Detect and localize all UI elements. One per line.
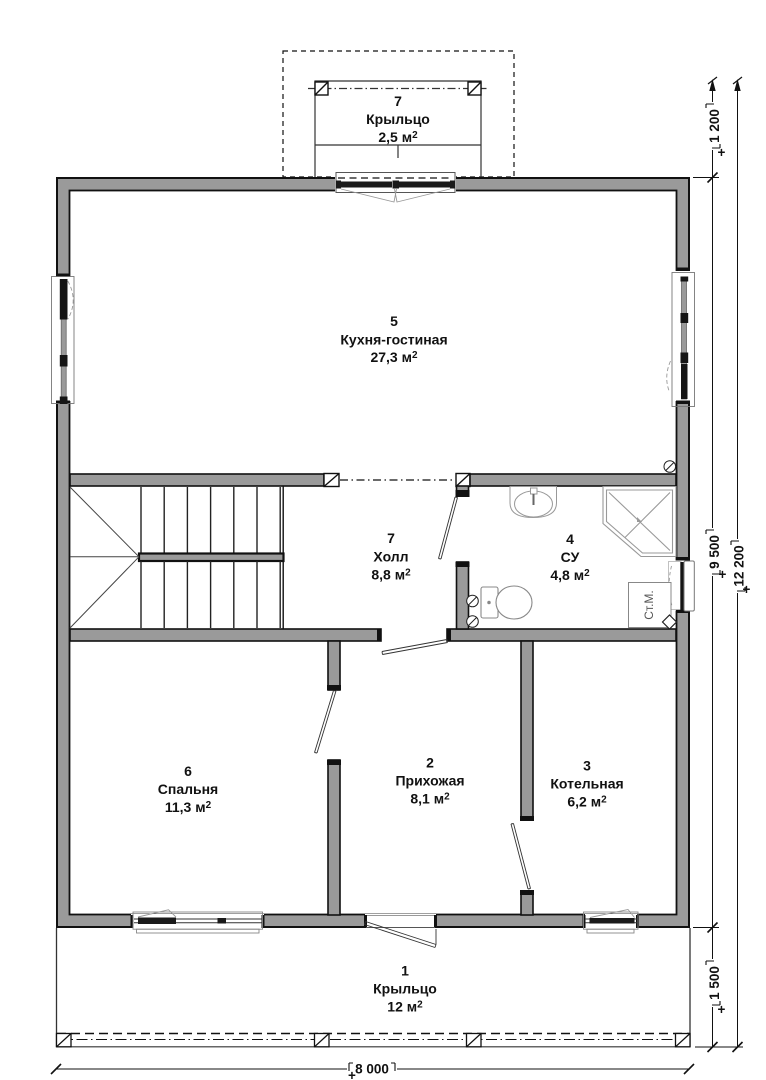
svg-text:11,3 м2: 11,3 м2 (165, 799, 212, 815)
svg-text:8 000: 8 000 (355, 1062, 389, 1077)
svg-text:Крыльцо: Крыльцо (366, 111, 430, 127)
svg-text:+: + (719, 567, 727, 582)
svg-text:2: 2 (426, 755, 434, 771)
svg-text:+: + (348, 1068, 356, 1080)
svg-text:27,3 м2: 27,3 м2 (370, 349, 418, 365)
svg-text:7: 7 (387, 530, 395, 546)
svg-text:Холл: Холл (373, 549, 408, 565)
svg-text:+: + (743, 582, 751, 597)
svg-text:Котельная: Котельная (550, 776, 623, 792)
svg-text:4: 4 (566, 531, 574, 547)
svg-text:3: 3 (583, 758, 591, 774)
svg-text:Ст.М.: Ст.М. (642, 590, 656, 620)
svg-text:12 200: 12 200 (732, 545, 747, 586)
svg-text:+: + (718, 1002, 726, 1017)
svg-text:Спальня: Спальня (158, 781, 218, 797)
svg-text:Кухня-гостиная: Кухня-гостиная (340, 332, 447, 348)
svg-text:СУ: СУ (561, 549, 580, 565)
svg-text:1: 1 (401, 963, 409, 979)
svg-text:5: 5 (390, 313, 398, 329)
svg-text:Прихожая: Прихожая (395, 773, 464, 789)
svg-text:+: + (718, 145, 726, 160)
svg-text:1 200: 1 200 (707, 109, 722, 143)
svg-text:7: 7 (394, 93, 402, 109)
svg-text:1 500: 1 500 (707, 966, 722, 1000)
svg-text:6: 6 (184, 763, 192, 779)
svg-text:9 500: 9 500 (707, 535, 722, 569)
svg-text:Крыльцо: Крыльцо (373, 981, 437, 997)
